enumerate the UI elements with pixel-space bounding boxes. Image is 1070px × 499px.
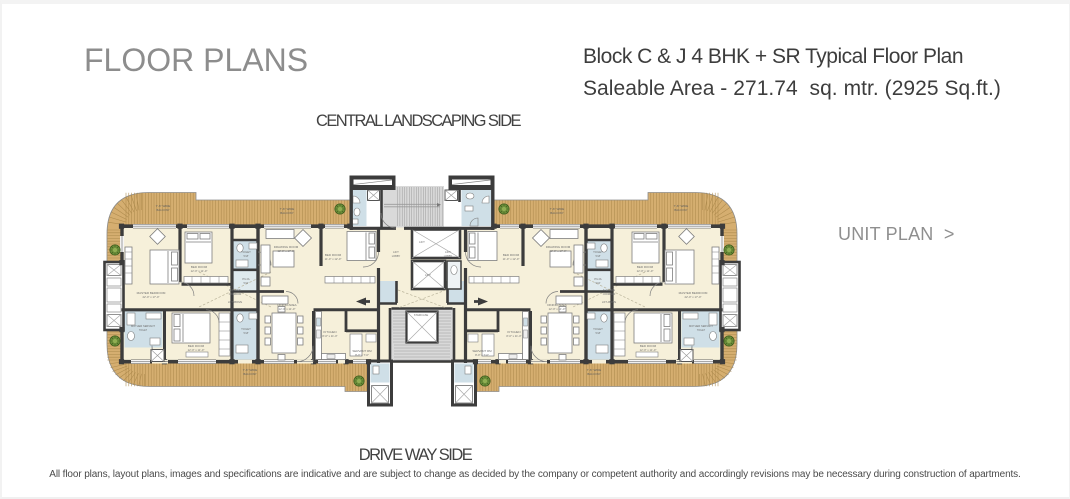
svg-text:5'x6': 5'x6' <box>243 281 249 285</box>
svg-text:4'-6" WIDE: 4'-6" WIDE <box>603 289 616 292</box>
svg-text:7'-6" WIDE: 7'-6" WIDE <box>280 207 295 211</box>
svg-text:TOILET: TOILET <box>593 327 603 331</box>
svg-text:SERVANT RM: SERVANT RM <box>472 349 492 353</box>
svg-text:BED ROOM: BED ROOM <box>503 253 520 257</box>
svg-text:5'x8': 5'x8' <box>595 254 601 258</box>
svg-text:BED ROOM: BED ROOM <box>640 344 657 348</box>
svg-text:BED ROOM: BED ROOM <box>325 253 342 257</box>
svg-text:KITCHEN: KITCHEN <box>507 330 520 334</box>
svg-text:MASTER BEDROOM: MASTER BEDROOM <box>679 291 708 295</box>
svg-text:LIFT ABOVE: LIFT ABOVE <box>602 301 617 304</box>
svg-text:8'-0" x 11'-0": 8'-0" x 11'-0" <box>322 334 337 338</box>
svg-text:BALCONY: BALCONY <box>587 372 600 376</box>
svg-text:LIFT ABOVE: LIFT ABOVE <box>228 301 243 304</box>
svg-text:CORRIDOR: CORRIDOR <box>229 294 242 296</box>
svg-text:DINING AREA: DINING AREA <box>547 303 566 307</box>
svg-text:DINING AREA: DINING AREA <box>277 303 296 307</box>
svg-text:11'-0" x 12'-0": 11'-0" x 12'-0" <box>503 257 520 261</box>
svg-text:TOILET: TOILET <box>697 329 706 332</box>
svg-text:TOILET: TOILET <box>593 250 603 254</box>
svg-text:DRAWING ROOM: DRAWING ROOM <box>274 245 299 249</box>
svg-text:BALCONY: BALCONY <box>156 208 169 212</box>
svg-text:PUJA: PUJA <box>594 277 601 281</box>
svg-text:BALCONY: BALCONY <box>550 211 563 215</box>
svg-text:BALCONY: BALCONY <box>243 372 256 376</box>
svg-text:5'x8': 5'x8' <box>243 331 249 335</box>
svg-text:22'-0" x 17'-0": 22'-0" x 17'-0" <box>143 295 160 299</box>
svg-text:LIFT: LIFT <box>393 250 399 254</box>
svg-text:MASTER BEDROOM: MASTER BEDROOM <box>137 291 166 295</box>
svg-text:7'-6" WIDE: 7'-6" WIDE <box>587 368 602 372</box>
svg-text:KITCHEN: KITCHEN <box>323 330 336 334</box>
svg-text:BED ROOM: BED ROOM <box>637 265 654 269</box>
svg-text:SERVANT RM: SERVANT RM <box>352 349 372 353</box>
svg-text:5'x8': 5'x8' <box>243 254 249 258</box>
svg-text:BALCONY: BALCONY <box>674 208 687 212</box>
svg-text:12'-0" x 17'-0": 12'-0" x 17'-0" <box>278 249 295 253</box>
svg-text:TOILET: TOILET <box>139 329 148 332</box>
svg-text:MOTHER SERVANT: MOTHER SERVANT <box>689 324 713 328</box>
svg-text:7'-6" WIDE: 7'-6" WIDE <box>156 204 171 208</box>
svg-text:7'-6" WIDE: 7'-6" WIDE <box>243 368 258 372</box>
svg-text:12'-0" x 11'-0": 12'-0" x 11'-0" <box>191 269 208 273</box>
svg-text:12'-0" x 11'-0": 12'-0" x 11'-0" <box>549 307 566 311</box>
svg-text:12'-0" x 11'-0": 12'-0" x 11'-0" <box>640 348 657 352</box>
svg-text:BED ROOM: BED ROOM <box>191 265 208 269</box>
svg-text:8'-0" x 7'-0": 8'-0" x 7'-0" <box>475 353 489 357</box>
svg-text:DRAWING ROOM: DRAWING ROOM <box>546 245 571 249</box>
svg-text:12'-0" x 11'-0": 12'-0" x 11'-0" <box>188 348 205 352</box>
svg-text:7'-6" WIDE: 7'-6" WIDE <box>674 204 689 208</box>
svg-text:TOILET: TOILET <box>241 327 251 331</box>
svg-text:STAIRCASE: STAIRCASE <box>414 313 429 317</box>
svg-text:12'-0" x 11'-0": 12'-0" x 11'-0" <box>279 307 296 311</box>
svg-text:7'-6" WIDE: 7'-6" WIDE <box>550 207 565 211</box>
svg-text:4'-6" WIDE: 4'-6" WIDE <box>229 289 242 292</box>
svg-text:8'-0" x 11'-0": 8'-0" x 11'-0" <box>506 334 521 338</box>
svg-text:CORRIDOR: CORRIDOR <box>603 294 616 296</box>
svg-text:12'-0" x 11'-0": 12'-0" x 11'-0" <box>637 269 654 273</box>
svg-text:8'-0" x 7'-0": 8'-0" x 7'-0" <box>355 353 369 357</box>
svg-text:MOTHER SERVANT: MOTHER SERVANT <box>131 324 155 328</box>
svg-text:BALCONY: BALCONY <box>280 211 293 215</box>
svg-text:BED ROOM: BED ROOM <box>188 344 205 348</box>
svg-text:LOBBY: LOBBY <box>392 254 401 258</box>
svg-text:5'x8': 5'x8' <box>595 331 601 335</box>
svg-text:11'-0" x 12'-0": 11'-0" x 12'-0" <box>325 257 342 261</box>
svg-text:LOBBY: LOBBY <box>444 254 453 258</box>
svg-text:22'-0" x 17'-0": 22'-0" x 17'-0" <box>685 295 702 299</box>
svg-text:TOILET: TOILET <box>241 250 251 254</box>
svg-text:LIFT: LIFT <box>445 250 451 254</box>
svg-text:12'-0" x 17'-0": 12'-0" x 17'-0" <box>550 249 567 253</box>
svg-text:5'x6': 5'x6' <box>595 281 601 285</box>
svg-text:PUJA: PUJA <box>242 277 249 281</box>
svg-text:LIFT: LIFT <box>419 240 425 244</box>
svg-text:LIFT: LIFT <box>425 273 431 277</box>
